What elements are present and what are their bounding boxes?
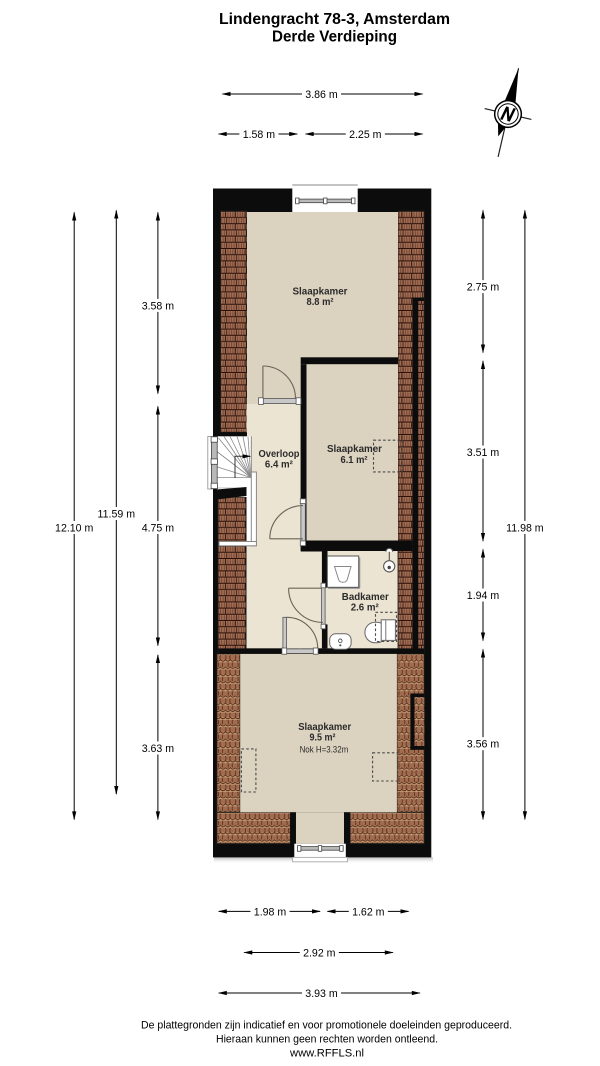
svg-text:6.4 m²: 6.4 m²	[265, 459, 293, 471]
svg-text:3.63 m: 3.63 m	[142, 743, 175, 755]
svg-text:2.92 m: 2.92 m	[303, 947, 336, 959]
svg-text:2.25 m: 2.25 m	[349, 129, 382, 141]
svg-text:1.98 m: 1.98 m	[254, 906, 287, 918]
svg-text:Lindengracht 78-3, Amsterdam: Lindengracht 78-3, Amsterdam	[219, 11, 450, 28]
svg-text:3.58 m: 3.58 m	[142, 300, 175, 312]
svg-text:Nok H=3.32m: Nok H=3.32m	[300, 745, 349, 756]
svg-text:3.93 m: 3.93 m	[305, 988, 338, 1000]
svg-text:3.56 m: 3.56 m	[467, 739, 500, 751]
svg-text:Hieraan kunnen geen rechten wo: Hieraan kunnen geen rechten worden ontle…	[216, 1033, 438, 1045]
svg-text:De plattegronden zijn indicati: De plattegronden zijn indicatief en voor…	[141, 1019, 512, 1031]
svg-text:6.1 m²: 6.1 m²	[341, 454, 368, 466]
svg-text:2.6 m²: 2.6 m²	[351, 602, 379, 614]
svg-text:2.75 m: 2.75 m	[467, 282, 500, 294]
svg-text:11.98 m: 11.98 m	[506, 522, 544, 534]
svg-text:3.51 m: 3.51 m	[467, 447, 500, 459]
svg-text:Derde Verdieping: Derde Verdieping	[272, 29, 397, 46]
svg-text:www.RFFLS.nl: www.RFFLS.nl	[289, 1047, 364, 1059]
svg-text:1.94 m: 1.94 m	[467, 590, 500, 602]
svg-text:12.10 m: 12.10 m	[55, 522, 93, 534]
svg-text:1.62 m: 1.62 m	[352, 906, 385, 918]
svg-text:3.86 m: 3.86 m	[305, 89, 338, 101]
svg-text:11.59 m: 11.59 m	[98, 508, 136, 520]
svg-text:8.8 m²: 8.8 m²	[307, 296, 334, 308]
svg-text:4.75 m: 4.75 m	[142, 522, 175, 534]
svg-text:1.58 m: 1.58 m	[243, 129, 276, 141]
svg-text:9.5 m²: 9.5 m²	[310, 731, 336, 743]
